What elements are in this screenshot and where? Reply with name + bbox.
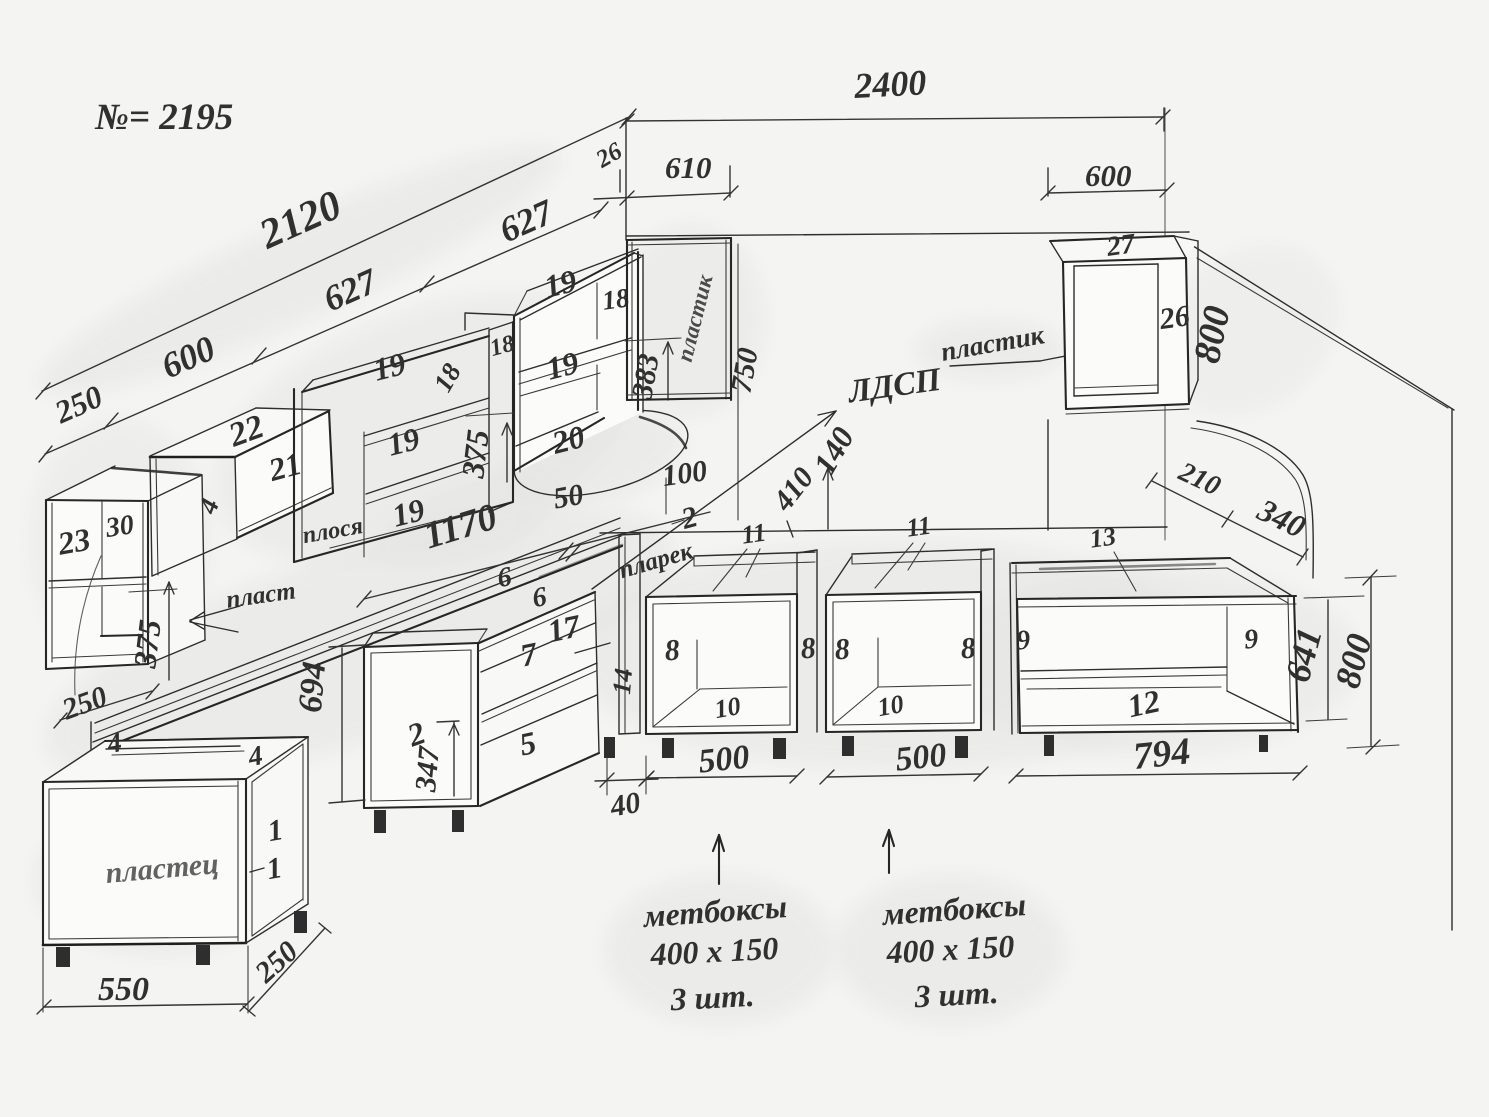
svg-text:2400: 2400 — [852, 62, 927, 106]
svg-text:500: 500 — [697, 738, 752, 780]
svg-text:794: 794 — [1131, 730, 1192, 778]
svg-text:8: 8 — [959, 631, 977, 665]
svg-text:100: 100 — [660, 454, 709, 493]
svg-text:26: 26 — [1157, 299, 1192, 336]
svg-text:694: 694 — [292, 660, 333, 714]
svg-text:500: 500 — [894, 736, 949, 778]
svg-text:30: 30 — [103, 509, 136, 544]
svg-text:50: 50 — [551, 478, 586, 516]
svg-text:14: 14 — [607, 667, 638, 695]
svg-text:347: 347 — [409, 744, 446, 794]
svg-text:400 х 150: 400 х 150 — [649, 930, 780, 973]
svg-text:23: 23 — [54, 521, 93, 562]
svg-text:3 шт.: 3 шт. — [913, 974, 1000, 1014]
svg-text:375: 375 — [126, 618, 168, 671]
svg-text:8: 8 — [799, 631, 817, 665]
svg-text:8: 8 — [833, 632, 851, 666]
svg-text:375: 375 — [454, 428, 496, 481]
svg-text:10: 10 — [712, 691, 743, 724]
svg-text:610: 610 — [665, 150, 712, 185]
svg-text:9: 9 — [1015, 624, 1032, 656]
svg-text:11: 11 — [905, 511, 933, 543]
svg-text:600: 600 — [1085, 158, 1132, 193]
svg-text:9: 9 — [1243, 623, 1260, 655]
svg-text:3 шт.: 3 шт. — [669, 977, 756, 1017]
svg-text:8: 8 — [663, 633, 681, 667]
svg-text:№= 2195: №= 2195 — [94, 97, 233, 138]
svg-text:10: 10 — [875, 689, 906, 722]
svg-text:11: 11 — [740, 518, 768, 550]
svg-text:13: 13 — [1088, 521, 1118, 553]
svg-text:550: 550 — [98, 971, 149, 1008]
svg-text:27: 27 — [1104, 228, 1138, 263]
svg-text:40: 40 — [607, 786, 643, 824]
svg-text:400 х 150: 400 х 150 — [885, 928, 1016, 971]
